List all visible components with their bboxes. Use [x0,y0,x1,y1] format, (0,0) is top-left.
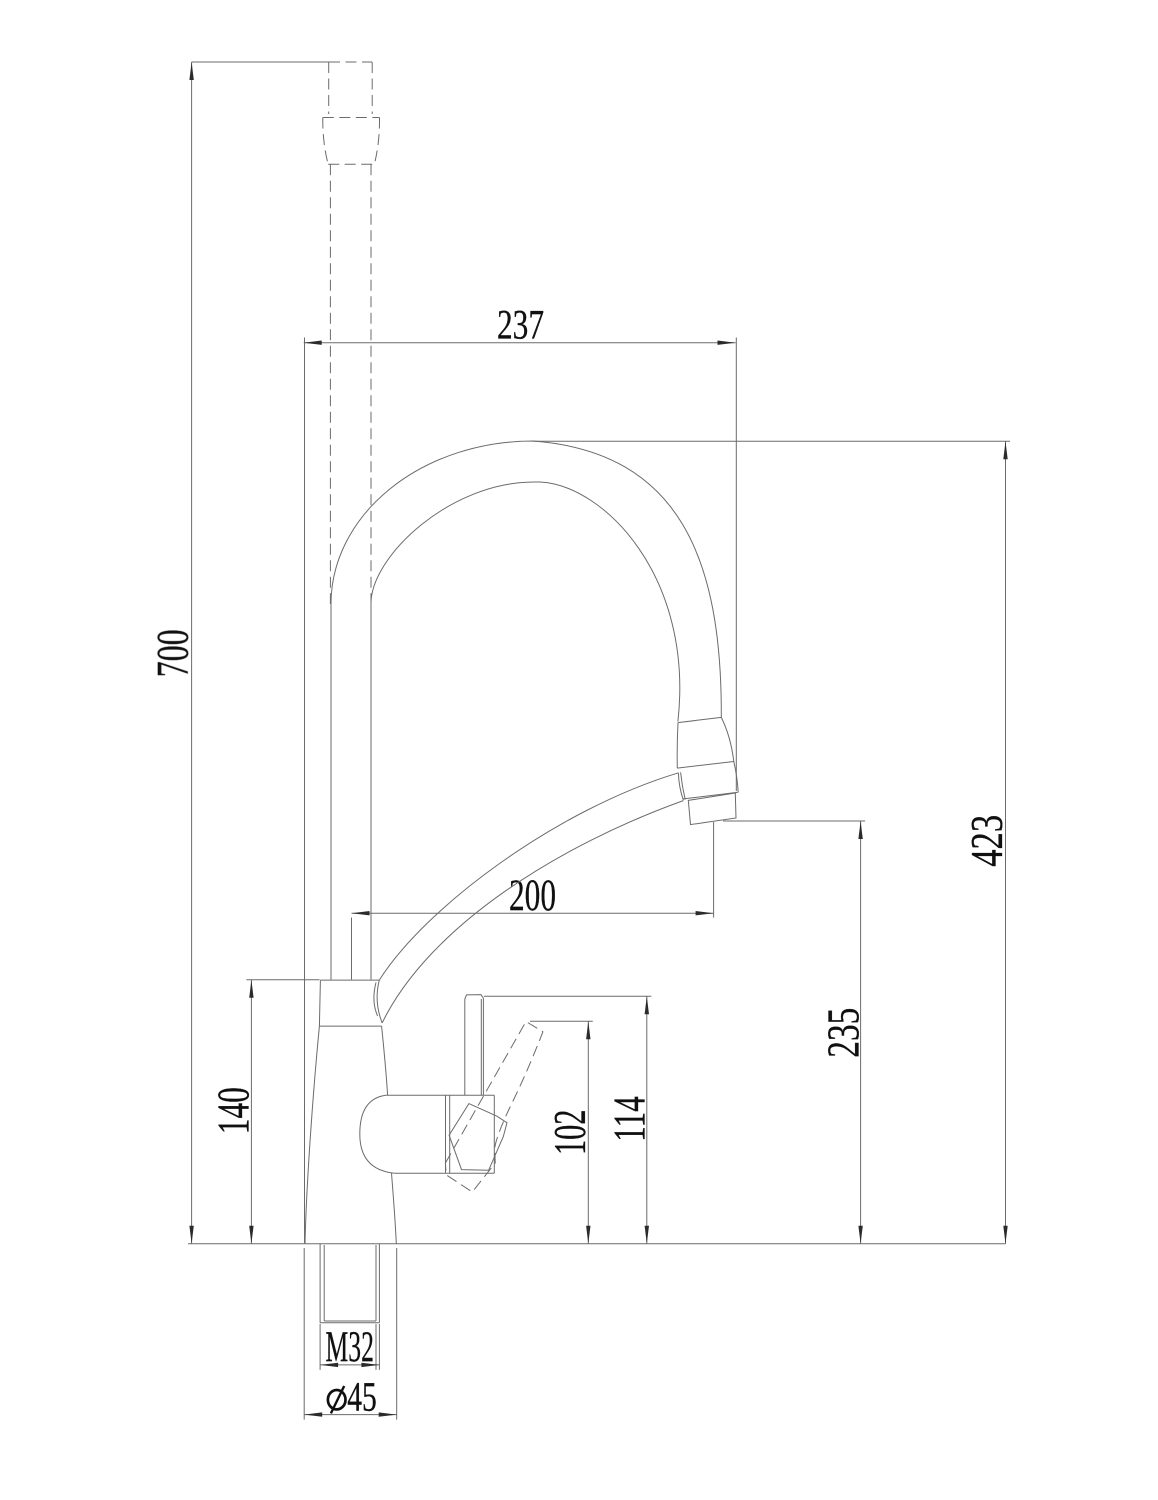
svg-text:700: 700 [147,629,198,677]
svg-text:45: 45 [347,1375,377,1421]
svg-text:140: 140 [209,1087,259,1134]
svg-text:102: 102 [545,1110,595,1156]
svg-text:M32: M32 [326,1322,374,1371]
svg-text:423: 423 [961,815,1012,867]
svg-text:114: 114 [605,1096,655,1142]
svg-text:200: 200 [509,870,556,920]
svg-text:235: 235 [818,1008,869,1058]
svg-text:237: 237 [497,302,544,348]
